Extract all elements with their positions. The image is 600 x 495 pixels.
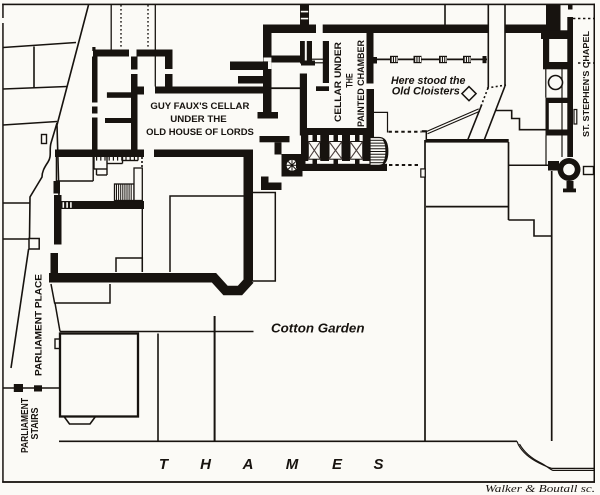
svg-text:A: A <box>242 456 254 473</box>
svg-text:OLD HOUSE OF LORDS: OLD HOUSE OF LORDS <box>146 127 254 137</box>
svg-text:STAIRS: STAIRS <box>30 407 41 439</box>
svg-text:PARLIAMENT PLACE: PARLIAMENT PLACE <box>34 274 44 376</box>
svg-text:E: E <box>332 456 343 473</box>
svg-text:S: S <box>373 456 383 473</box>
svg-text:GUY FAUX'S CELLAR: GUY FAUX'S CELLAR <box>150 101 250 111</box>
svg-text:UNDER THE: UNDER THE <box>170 114 227 124</box>
svg-text:H: H <box>200 456 212 473</box>
svg-text:CELLAR UNDER: CELLAR UNDER <box>333 41 343 122</box>
svg-text:Walker & Boutall sc.: Walker & Boutall sc. <box>485 483 595 495</box>
svg-text:THE: THE <box>345 73 355 88</box>
svg-text:Cotton Garden: Cotton Garden <box>271 321 365 335</box>
svg-text:M: M <box>286 456 299 473</box>
svg-text:ST. STEPHEN'S CHAPEL: ST. STEPHEN'S CHAPEL <box>581 31 591 137</box>
svg-text:PAINTED CHAMBER: PAINTED CHAMBER <box>356 40 366 127</box>
svg-text:Old Cloisters: Old Cloisters <box>392 86 460 98</box>
